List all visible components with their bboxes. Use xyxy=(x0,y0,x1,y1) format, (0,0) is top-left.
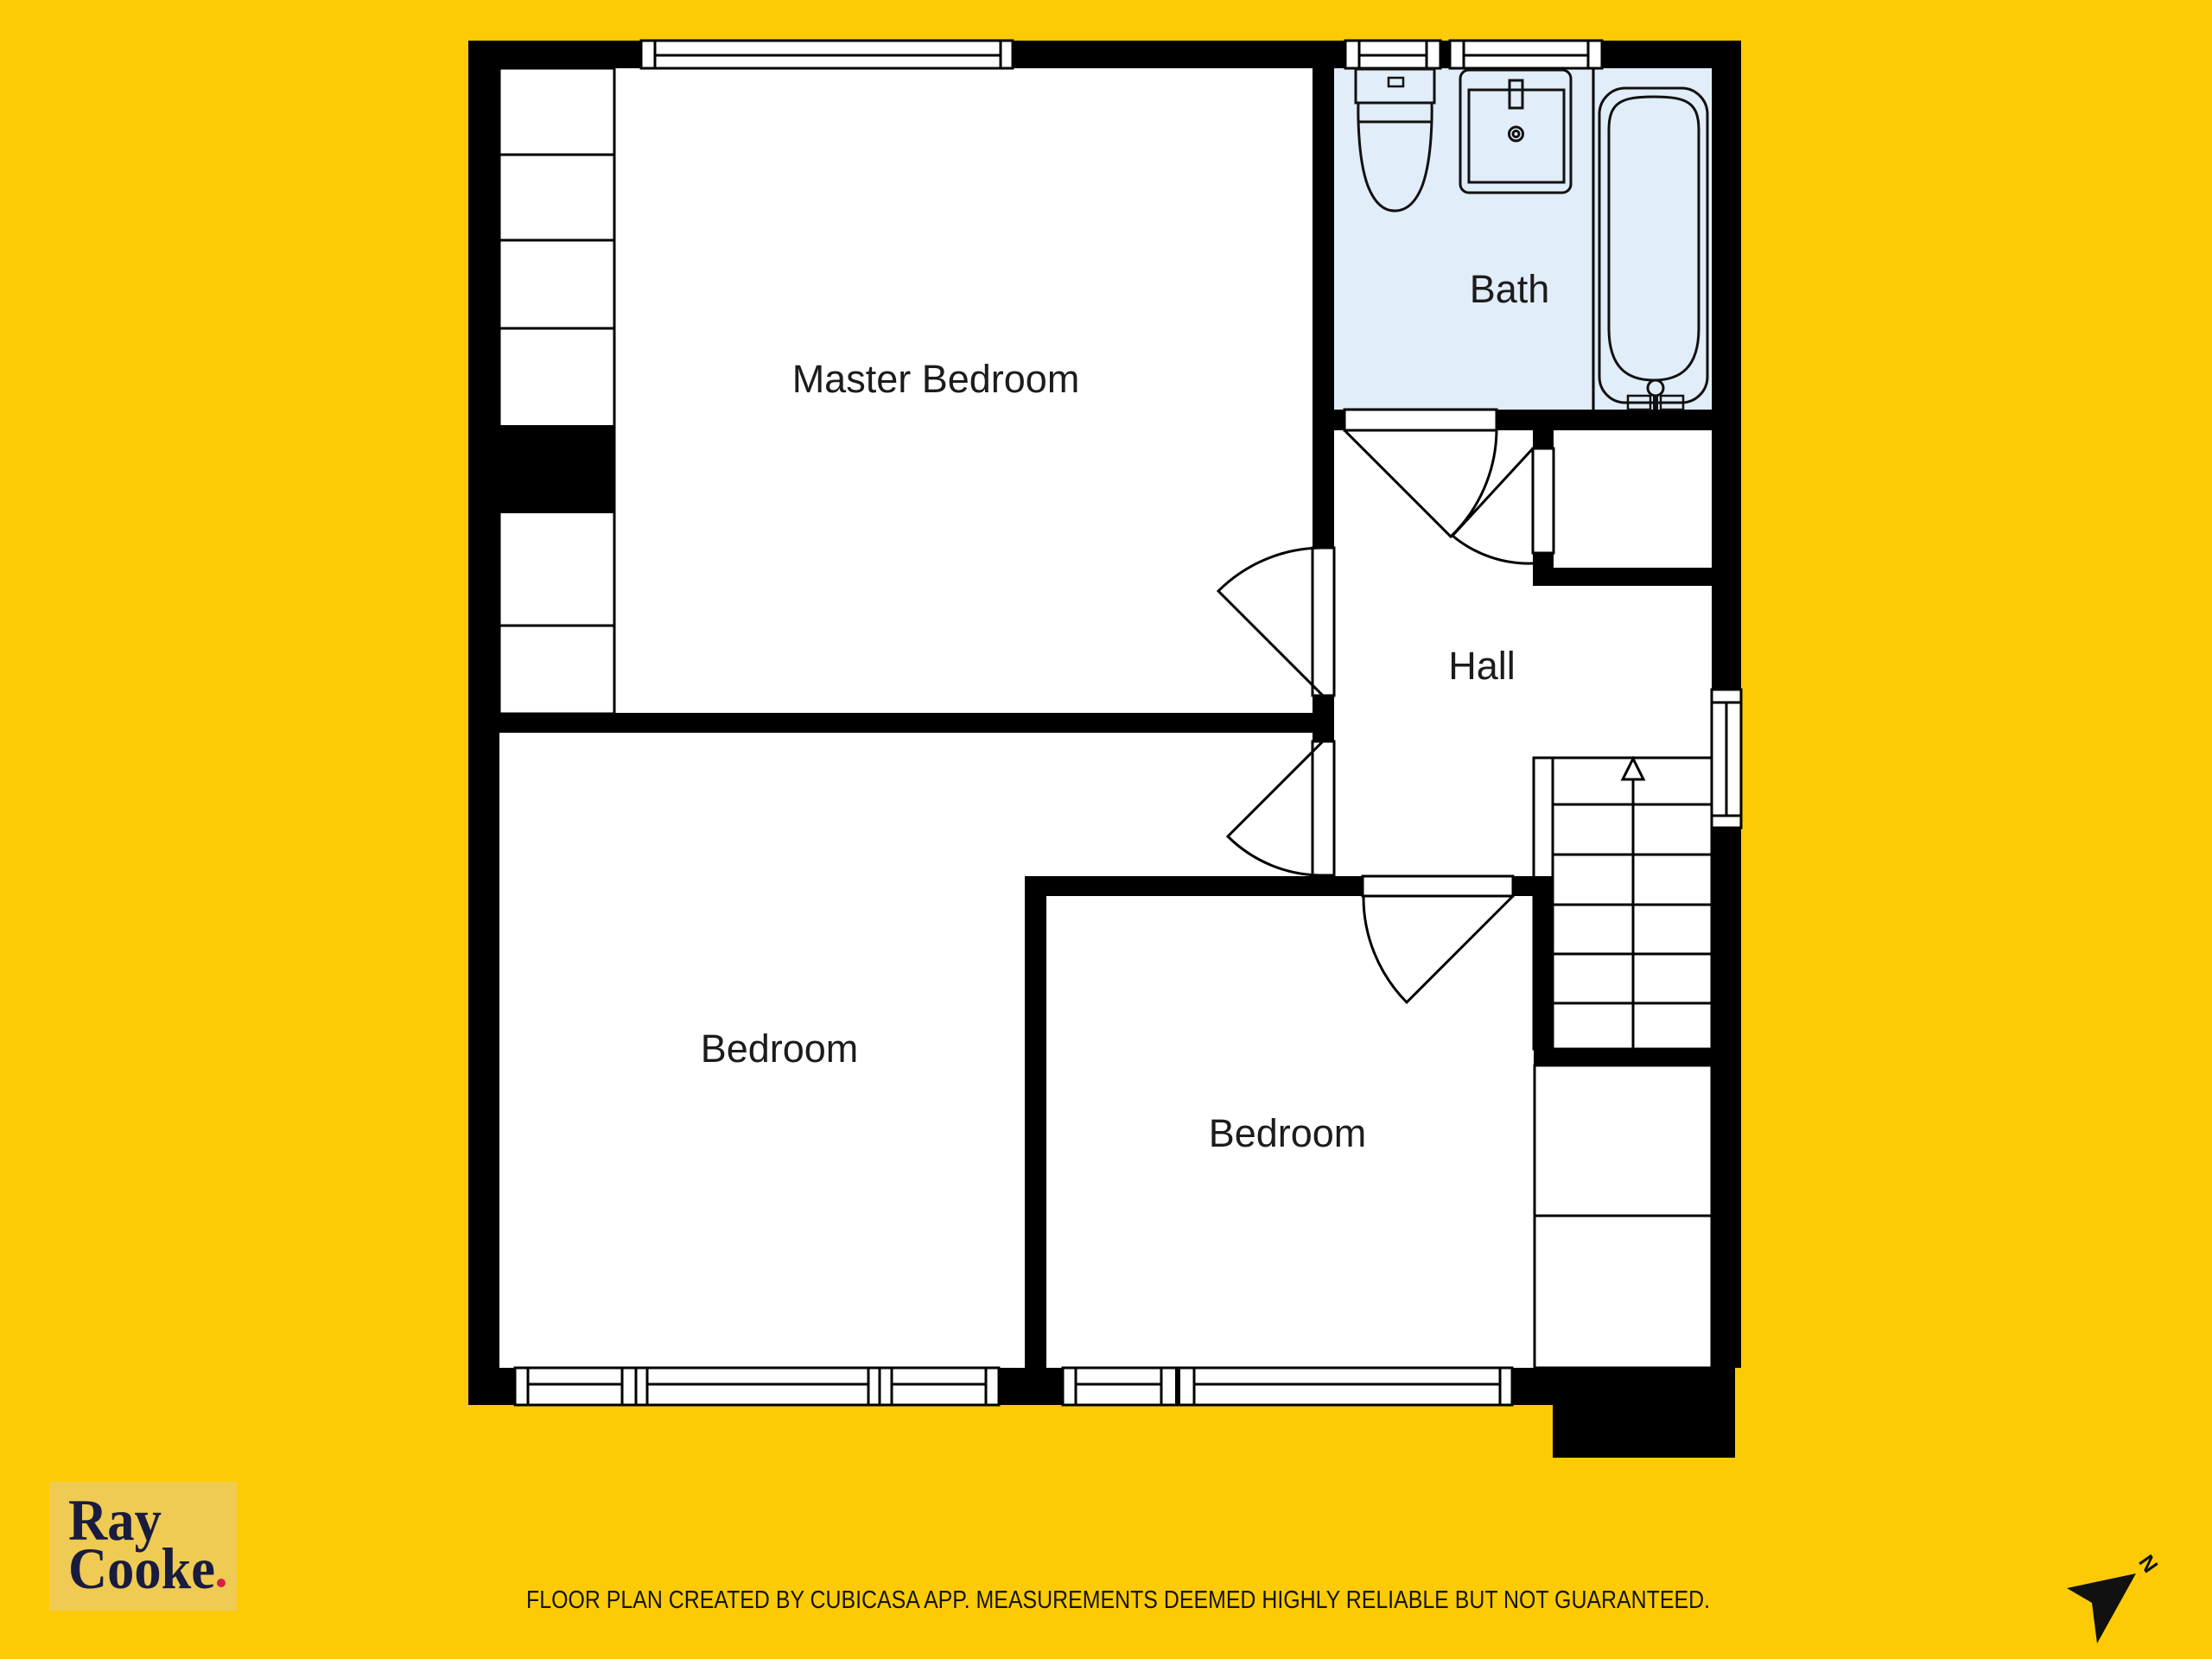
svg-text:FLOOR PLAN CREATED BY CUBICASA: FLOOR PLAN CREATED BY CUBICASA APP. MEAS… xyxy=(526,1586,1710,1614)
svg-text:Cooke: Cooke xyxy=(68,1535,215,1601)
svg-text:Bath: Bath xyxy=(1470,267,1550,311)
svg-text:Master Bedroom: Master Bedroom xyxy=(792,357,1080,401)
svg-text:Bedroom: Bedroom xyxy=(701,1027,859,1071)
svg-text:Hall: Hall xyxy=(1448,644,1516,688)
svg-text:Bedroom: Bedroom xyxy=(1209,1111,1367,1155)
